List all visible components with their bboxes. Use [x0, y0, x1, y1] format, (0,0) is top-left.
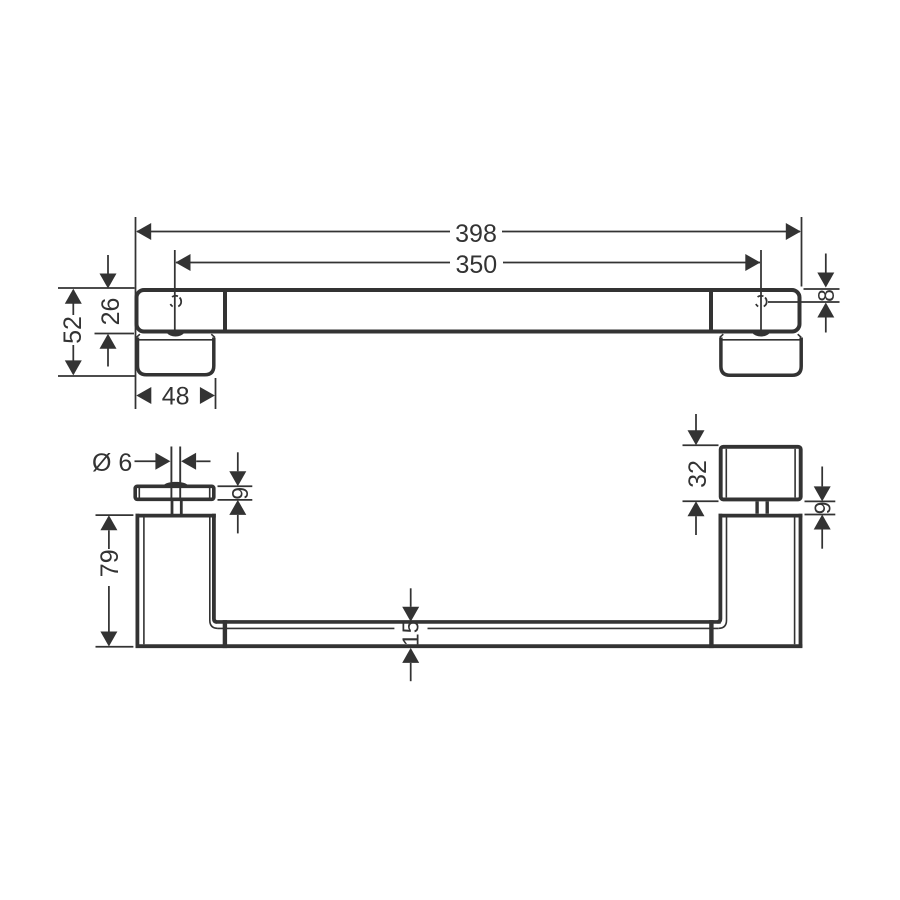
svg-text:8: 8: [813, 289, 839, 302]
svg-text:52: 52: [59, 316, 87, 344]
svg-text:9: 9: [227, 487, 253, 500]
svg-text:48: 48: [162, 382, 190, 410]
svg-text:398: 398: [455, 220, 497, 248]
svg-text:9: 9: [810, 502, 836, 515]
svg-text:32: 32: [684, 460, 712, 488]
svg-text:79: 79: [96, 549, 124, 577]
svg-text:Ø 6: Ø 6: [92, 449, 132, 477]
svg-text:15: 15: [397, 621, 423, 647]
svg-text:26: 26: [97, 298, 125, 326]
svg-text:350: 350: [455, 251, 497, 279]
